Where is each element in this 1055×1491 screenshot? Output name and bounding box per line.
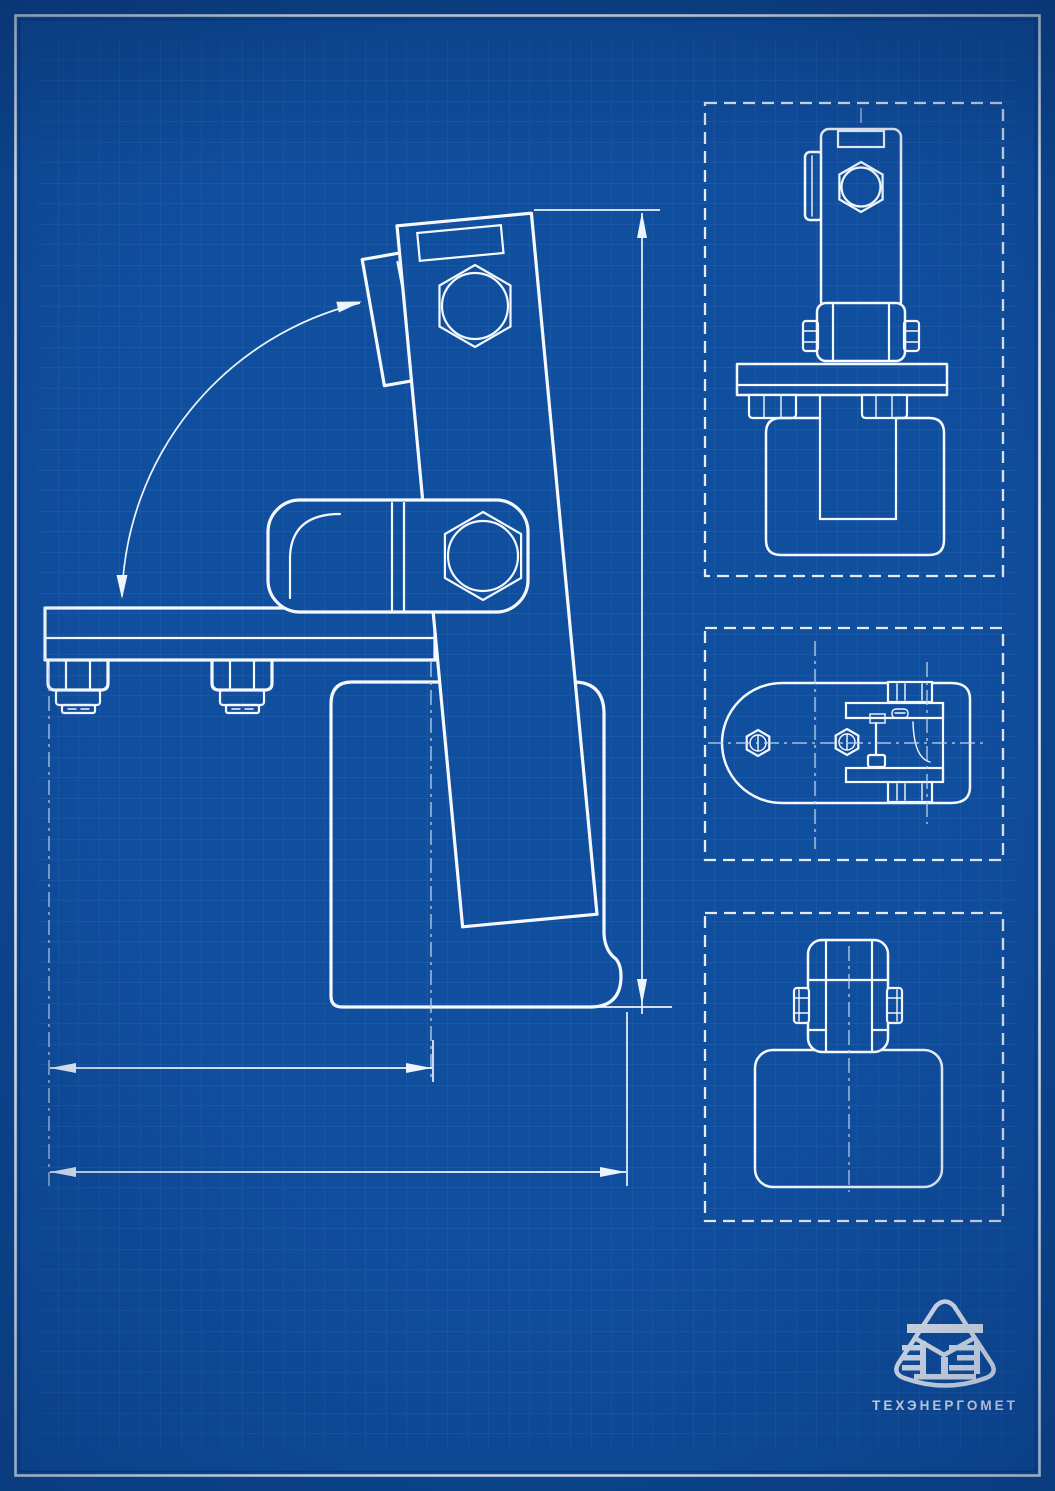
front-arm bbox=[821, 129, 901, 309]
blueprint-sheet: ТЕХЭНЕРГОМЕТ bbox=[0, 0, 1055, 1491]
front-bolt-left bbox=[749, 395, 796, 418]
rear-side-bolt-left bbox=[794, 988, 809, 1023]
rear-clamp bbox=[808, 940, 888, 1052]
logo-caption: ТЕХЭНЕРГОМЕТ bbox=[872, 1398, 1018, 1413]
rear-side-bolt-right bbox=[887, 988, 902, 1023]
technical-drawing: ТЕХЭНЕРГОМЕТ bbox=[0, 0, 1055, 1491]
front-bolt-right bbox=[862, 395, 907, 418]
front-plate bbox=[737, 364, 947, 395]
front-clamp bbox=[817, 303, 905, 361]
pivot-clamp bbox=[268, 500, 528, 612]
